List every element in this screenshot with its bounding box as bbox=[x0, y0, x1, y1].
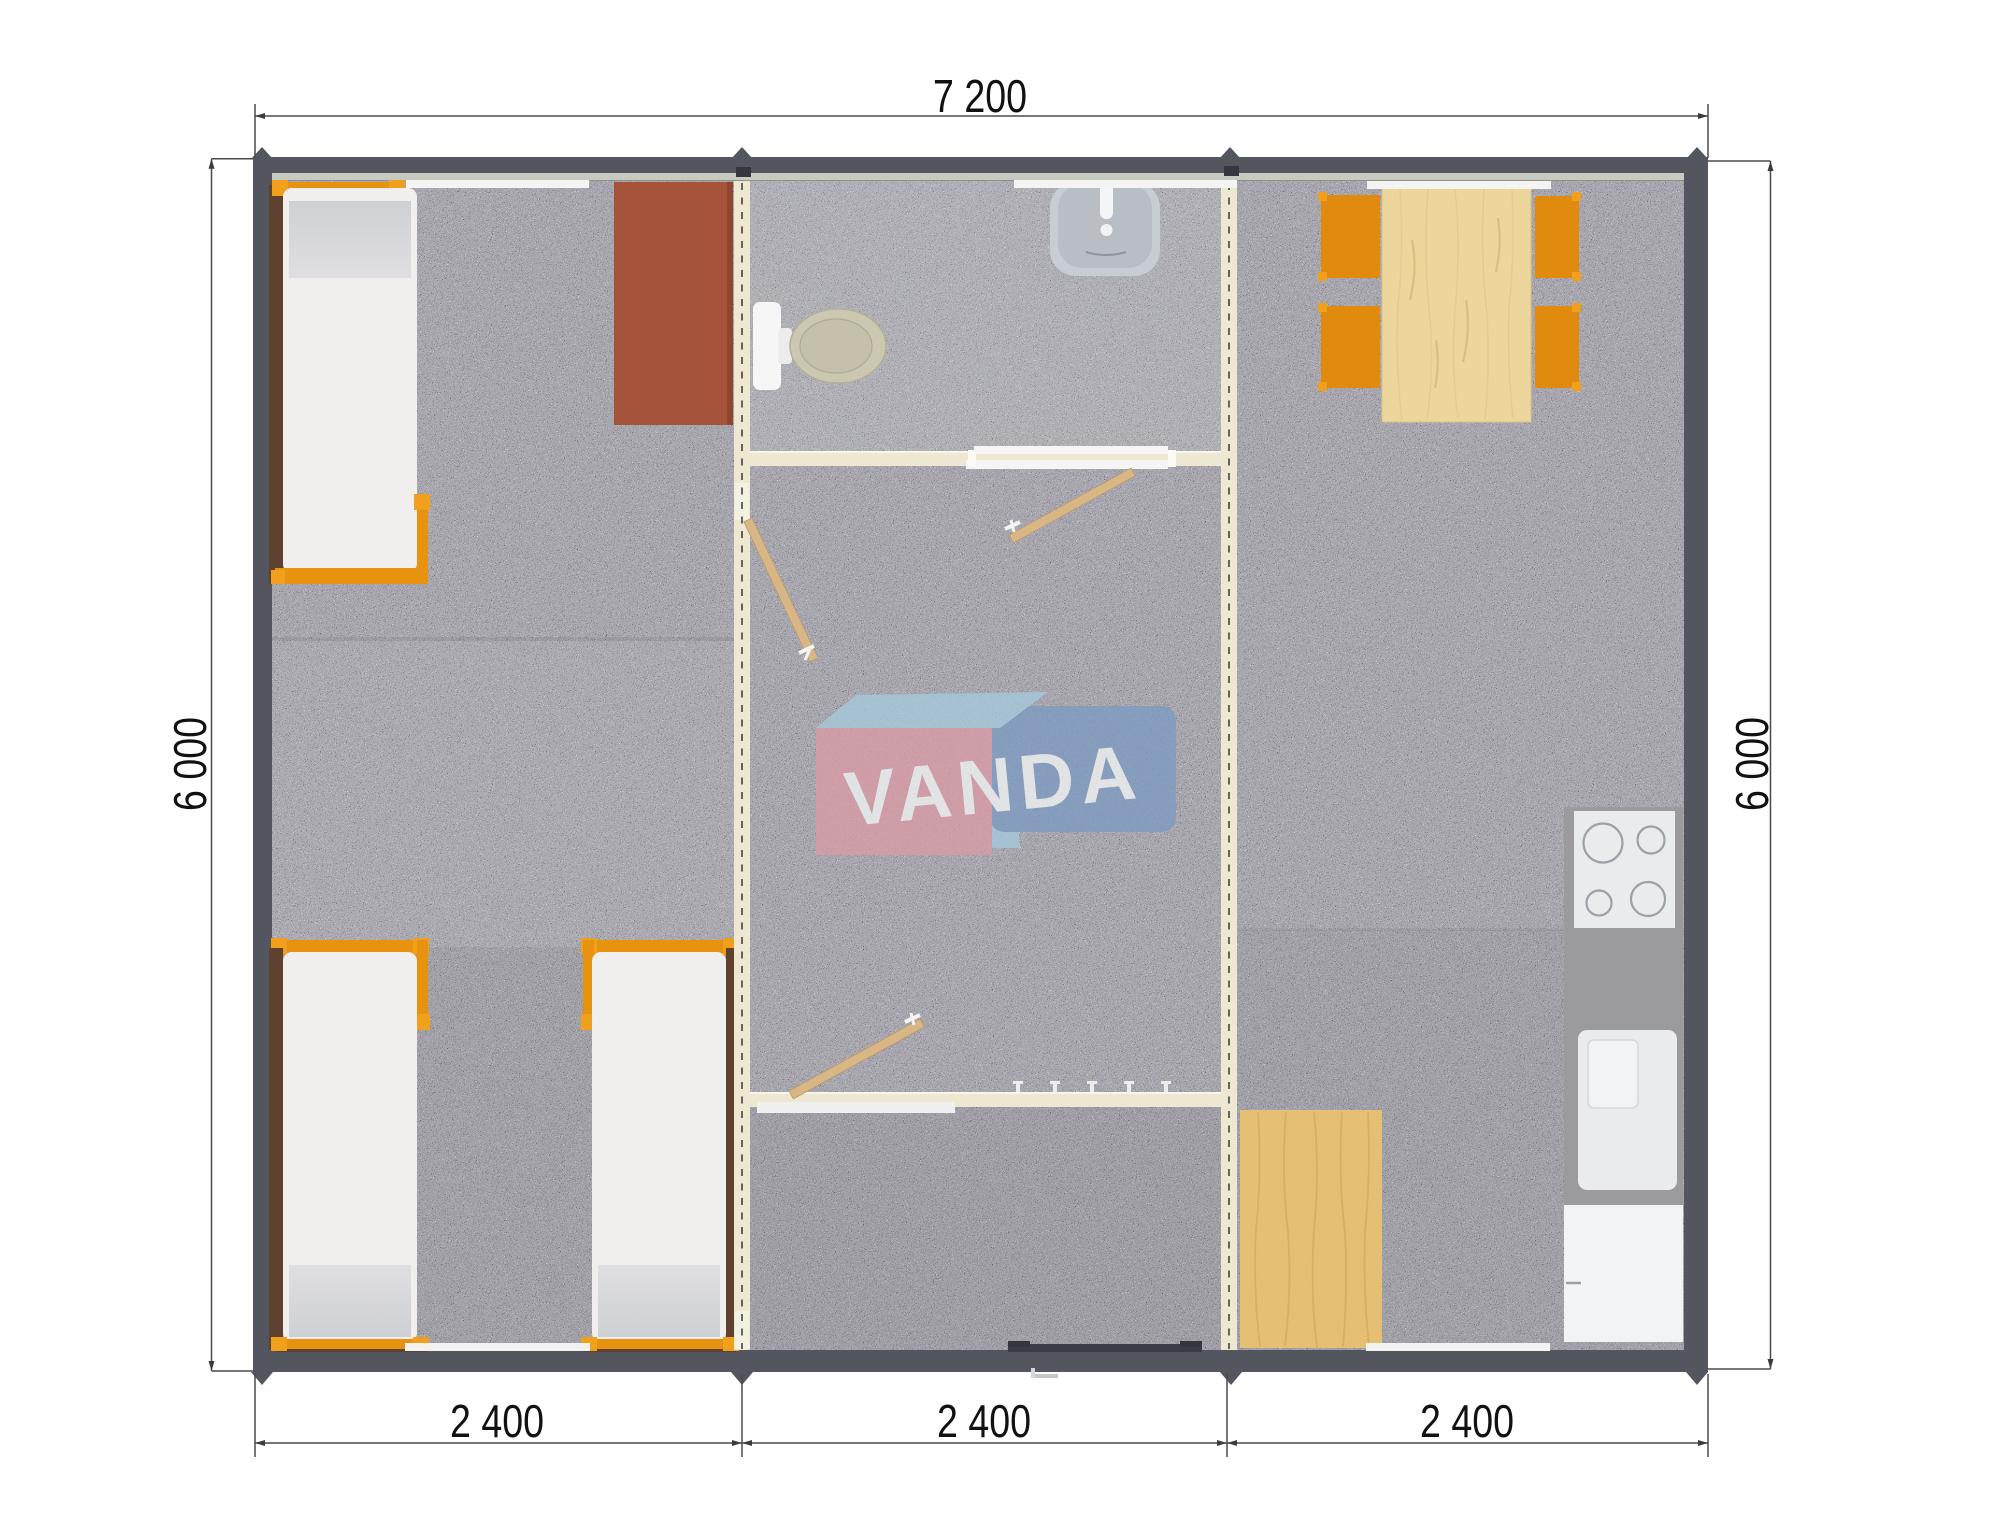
svg-text:6 000: 6 000 bbox=[164, 717, 216, 811]
svg-text:2 400: 2 400 bbox=[450, 1395, 544, 1447]
svg-text:2 400: 2 400 bbox=[937, 1395, 1031, 1447]
svg-text:7 200: 7 200 bbox=[933, 70, 1027, 122]
svg-text:2 400: 2 400 bbox=[1420, 1395, 1514, 1447]
svg-text:6 000: 6 000 bbox=[1726, 717, 1778, 811]
